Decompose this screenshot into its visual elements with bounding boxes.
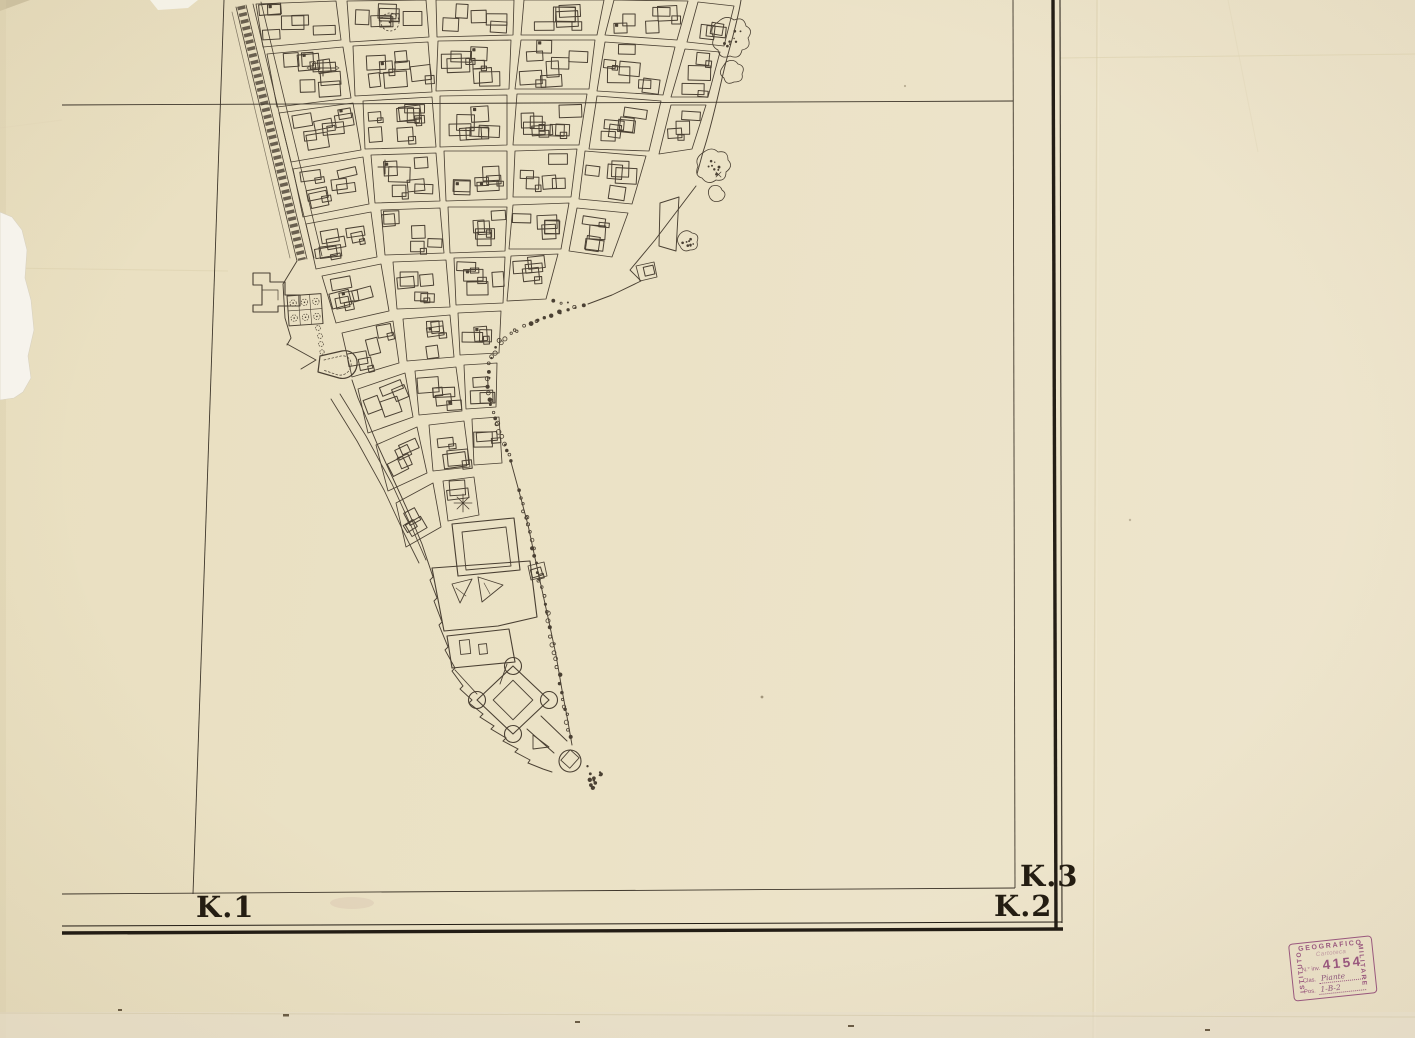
tree-dot xyxy=(567,301,569,303)
building xyxy=(480,183,482,185)
tree-dot xyxy=(735,41,737,43)
tree-dot xyxy=(686,244,689,247)
tree-dot xyxy=(733,30,736,33)
tree-dot xyxy=(489,403,492,406)
building xyxy=(340,110,342,112)
building xyxy=(385,163,387,165)
tree-dot xyxy=(493,417,497,421)
stamp-clas-label: Clas. xyxy=(1303,977,1317,984)
tree-dot xyxy=(689,238,692,241)
tree-dot xyxy=(582,303,586,307)
tree-dot xyxy=(488,397,492,401)
building xyxy=(539,42,541,44)
tree-dot xyxy=(569,735,573,739)
sheet-label-k1: K.1 xyxy=(196,893,254,922)
tree-dot xyxy=(529,321,534,326)
tree-dot xyxy=(733,38,735,40)
tree-dot xyxy=(688,240,690,242)
tree-dot xyxy=(488,377,490,379)
rock-dot xyxy=(593,781,597,785)
building xyxy=(615,24,617,26)
map-canvas xyxy=(0,0,1415,1038)
tree-dot xyxy=(713,168,715,170)
tree-dot xyxy=(718,166,721,169)
building xyxy=(456,183,458,185)
rock-dot xyxy=(593,787,595,789)
tree-dot xyxy=(681,241,684,244)
tree-dot xyxy=(543,316,546,319)
tree-dot xyxy=(536,319,539,322)
tree-dot xyxy=(517,488,521,492)
tree-dot xyxy=(708,166,710,168)
tree-dot xyxy=(710,160,713,163)
building xyxy=(473,49,475,51)
sheet-label-k3: K.3 xyxy=(1020,862,1078,891)
tree-dot xyxy=(509,459,512,462)
building xyxy=(269,5,271,7)
tree-dot xyxy=(486,385,490,389)
tree-dot xyxy=(726,45,729,48)
building xyxy=(476,328,478,330)
tree-dot xyxy=(558,673,562,677)
paper-smudge xyxy=(330,897,374,909)
tree-dot xyxy=(535,561,538,564)
stamp-pos-label: Pos. xyxy=(1304,988,1316,995)
tree-dot xyxy=(728,40,731,43)
tree-dot xyxy=(717,169,719,171)
tree-dot xyxy=(487,370,491,374)
rock-dot xyxy=(586,765,588,767)
building xyxy=(473,108,475,110)
tree-dot xyxy=(560,691,564,695)
scanned-map-sheet: K.1 K.2 K.3 ISTITUTO GEOGRAFICO MILITARE… xyxy=(0,0,1415,1038)
tree-dot xyxy=(690,245,692,247)
rock-dot xyxy=(592,776,596,780)
tree-dot xyxy=(536,571,539,574)
tree-dot xyxy=(729,43,731,45)
building xyxy=(449,401,451,403)
tree-dot xyxy=(566,308,569,311)
rock-dot xyxy=(599,771,601,773)
rock-dot xyxy=(589,772,592,775)
archive-stamp: ISTITUTO GEOGRAFICO MILITARE Cartoteca N… xyxy=(1288,935,1378,1001)
building xyxy=(303,54,305,56)
tree-dot xyxy=(558,682,561,685)
tree-dot xyxy=(740,30,742,32)
tree-dot xyxy=(544,603,547,606)
tree-dot xyxy=(559,312,561,314)
tree-dot xyxy=(692,243,694,245)
building xyxy=(342,292,345,295)
tree-dot xyxy=(549,314,553,318)
building xyxy=(381,62,383,64)
tree-dot xyxy=(505,449,509,453)
sheet-label-k2: K.2 xyxy=(994,892,1052,921)
tree-dot xyxy=(723,42,726,45)
tree-dot xyxy=(551,299,555,303)
tree-dot xyxy=(686,241,688,243)
paper-texture xyxy=(0,0,1415,1038)
rock-dot xyxy=(588,778,592,782)
tree-dot xyxy=(548,625,552,629)
tree-dot xyxy=(715,173,718,176)
tree-dot xyxy=(711,165,713,167)
rock-dot xyxy=(599,773,602,776)
tree-dot xyxy=(494,346,497,349)
tree-dot xyxy=(532,554,536,558)
tree-dot xyxy=(714,162,715,163)
